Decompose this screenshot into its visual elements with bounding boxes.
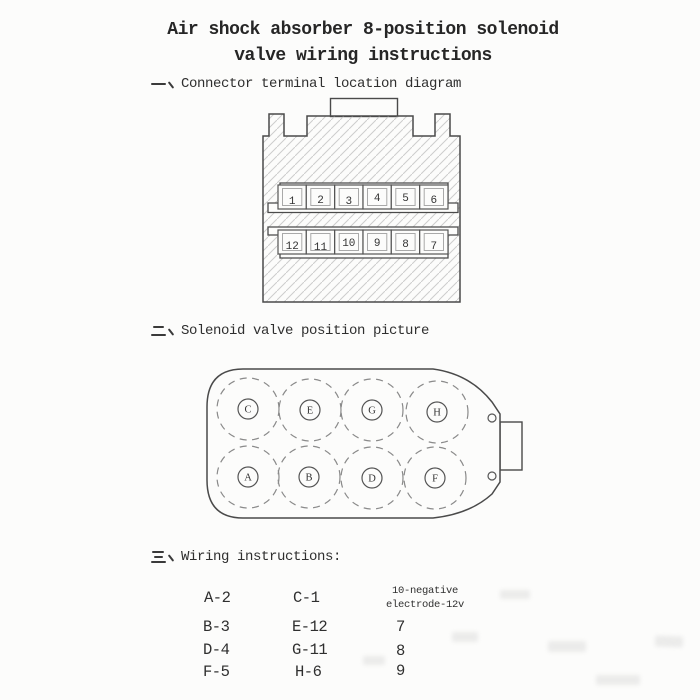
wiring-cell: C-1 (293, 589, 319, 607)
wiring-cell: B-3 (203, 618, 229, 636)
terminal-number: 9 (374, 238, 381, 250)
wiring-cell: 9 (396, 662, 405, 680)
terminal-number: 5 (402, 193, 409, 205)
wiring-cell: G-11 (292, 641, 327, 659)
terminal-number: 6 (430, 195, 437, 207)
wiring-cell: D-4 (203, 641, 229, 659)
terminal-number: 4 (374, 193, 381, 205)
wiring-cell: A-2 (204, 589, 230, 607)
scan-artifact (452, 632, 478, 642)
scan-artifact (655, 636, 683, 648)
port-label: C (244, 405, 251, 416)
terminal-number: 3 (345, 196, 352, 208)
section-heading-text: Connector terminal location diagram (175, 76, 461, 92)
wiring-cell: H-6 (295, 663, 321, 681)
wiring-note-line-2: electrode-12v (375, 599, 475, 611)
cjk-comma-icon (167, 78, 175, 91)
mounting-hole (488, 414, 496, 422)
section-heading-text: Wiring instructions: (175, 549, 341, 565)
port-label: G (368, 406, 376, 417)
document-title: Air shock absorber 8-position solenoid v… (0, 17, 700, 69)
mounting-hole (488, 472, 496, 480)
cjk-numeral-three-icon (151, 549, 167, 565)
cjk-comma-icon (167, 325, 175, 338)
port-label: A (244, 473, 252, 484)
section-three-heading: Wiring instructions: (151, 549, 341, 565)
terminal-row-top: 1 2 3 4 5 6 (278, 185, 448, 209)
title-line-1: Air shock absorber 8-position solenoid (26, 17, 700, 43)
terminal-number: 1 (289, 196, 296, 208)
connector-top-tab (331, 99, 398, 117)
wiring-cell: E-12 (292, 618, 327, 636)
valve-connector-tab (500, 422, 522, 470)
terminal-number: 8 (402, 239, 409, 251)
section-one-heading: Connector terminal location diagram (151, 76, 461, 92)
port-label: H (433, 408, 441, 419)
cjk-numeral-two-icon (151, 323, 167, 339)
port-label: E (307, 406, 313, 417)
port-label: D (368, 474, 376, 485)
wiring-note-line-1: 10-negative (380, 585, 470, 597)
terminal-row-bottom: 12 11 10 9 8 7 (278, 230, 448, 254)
terminal-number: 10 (342, 238, 355, 250)
terminal-number: 7 (430, 241, 437, 253)
section-heading-text: Solenoid valve position picture (175, 323, 429, 339)
wiring-cell: 8 (396, 642, 405, 660)
wiring-cell: 7 (396, 618, 405, 636)
wiring-cell: F-5 (203, 663, 229, 681)
title-line-2: valve wiring instructions (26, 43, 700, 69)
cjk-numeral-one-icon (151, 76, 167, 92)
terminal-number: 2 (317, 195, 324, 207)
scan-artifact (596, 675, 640, 685)
terminal-number: 11 (314, 242, 328, 254)
scan-artifact (548, 641, 586, 652)
scan-artifact (363, 656, 385, 665)
valve-body (207, 369, 500, 518)
port-label: B (305, 473, 312, 484)
section-two-heading: Solenoid valve position picture (151, 323, 429, 339)
solenoid-valve-diagram: C E G H A B D F (198, 361, 533, 526)
scan-artifact (500, 590, 530, 599)
port-label: F (432, 474, 438, 485)
connector-terminal-diagram: 1 2 3 4 5 6 12 11 10 9 8 7 (259, 93, 464, 305)
cjk-comma-icon (167, 551, 175, 564)
document-page: Air shock absorber 8-position solenoid v… (0, 0, 700, 700)
terminal-number: 12 (286, 241, 299, 253)
